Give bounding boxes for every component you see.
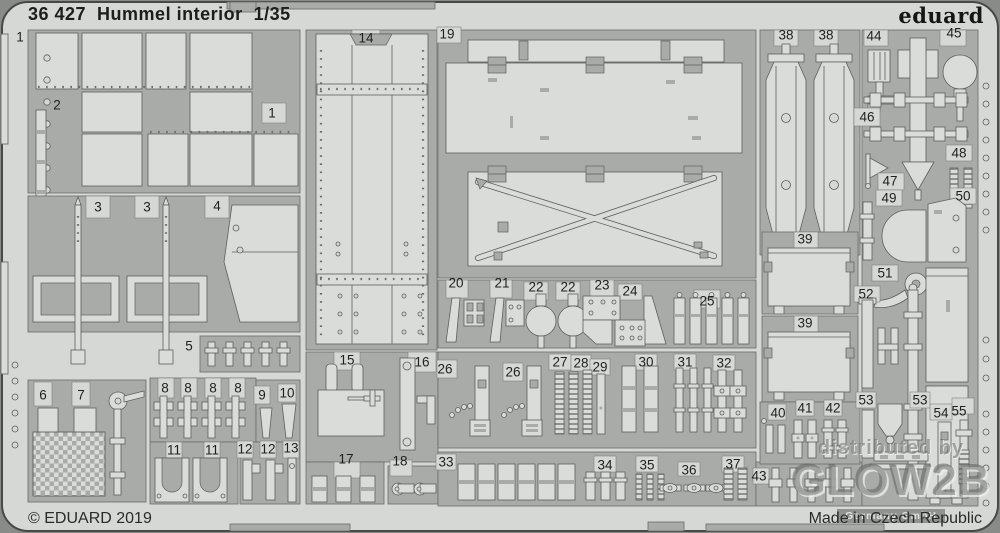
fret-artwork bbox=[0, 0, 1000, 533]
eduard-logo: eduard bbox=[898, 3, 984, 28]
photoetch-product-sheet: 36 427 Hummel interior 1/35 eduard 11233… bbox=[0, 0, 1000, 533]
made-in-text: Made in Czech Republic bbox=[809, 510, 982, 528]
sheet-header: 36 427 Hummel interior 1/35 eduard bbox=[0, 0, 1000, 28]
page-title: 36 427 Hummel interior 1/35 bbox=[28, 4, 291, 25]
copyright-text: © EDUARD 2019 bbox=[28, 510, 152, 528]
sheet-footer: © EDUARD 2019 Made in Czech Republic bbox=[0, 505, 1000, 533]
